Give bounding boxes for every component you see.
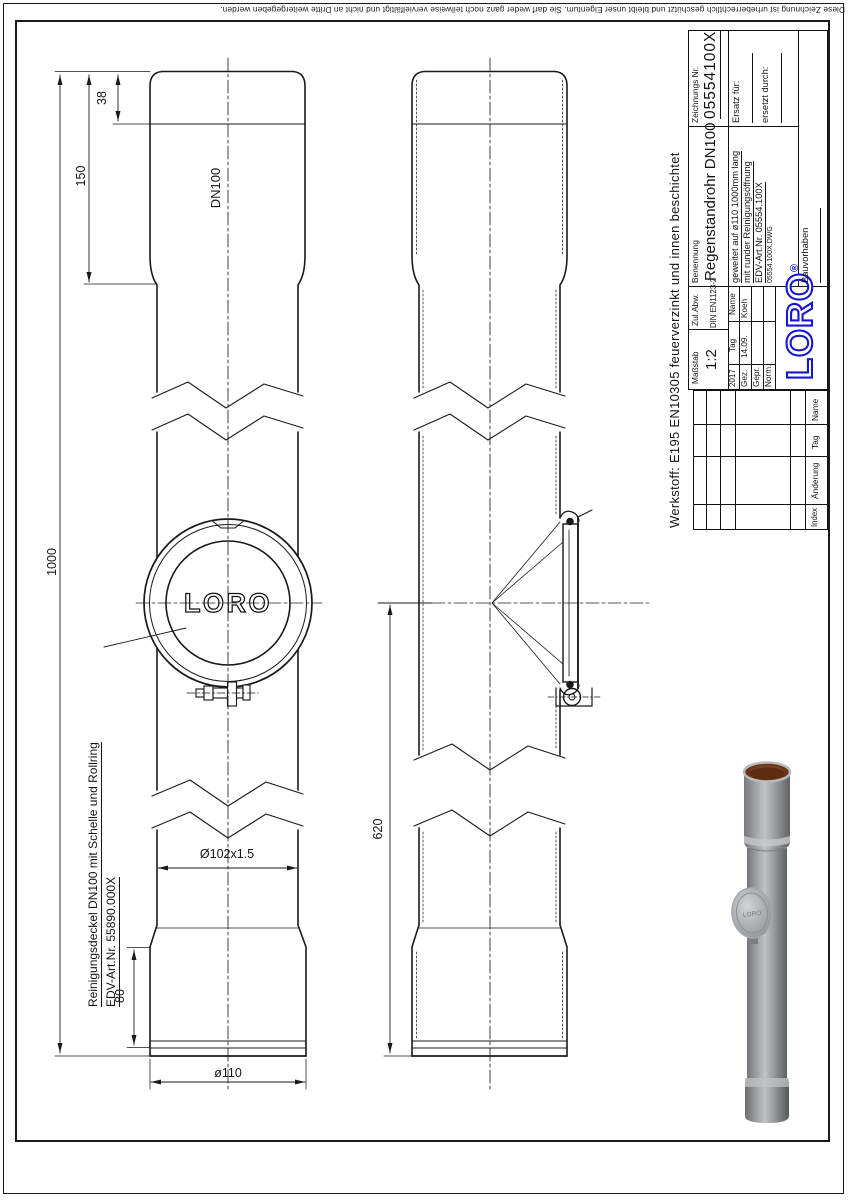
tag-header: Tag	[729, 339, 738, 352]
ersetzt-label: ersetzt durch:	[761, 67, 771, 123]
desc-line3: EDV-Art.Nr. 05554.100X	[755, 182, 766, 283]
masstab-label: Maßstab	[691, 351, 700, 384]
gez-name: Koeh	[741, 299, 750, 318]
drawing-view-section: 620	[371, 58, 650, 1090]
desc-line2: mit runder Reinigungsöffnung	[743, 161, 754, 283]
cleaning-cover-section	[492, 510, 600, 706]
dim-150-label: 150	[74, 166, 88, 187]
bauvorhaben-label: Bauvorhaben	[801, 228, 811, 283]
product-photo: LORO	[729, 763, 790, 1124]
gez-label: Gez.	[741, 370, 750, 387]
desc-line1: geweitet auf ø110 1000mm lang	[731, 151, 742, 283]
callout-line2: EDV-Art.Nr. 55890.000X	[104, 877, 120, 1007]
revision-aenderung-label: Änderung	[811, 463, 820, 499]
ersatz-label: Ersatz für:	[732, 81, 742, 123]
zeichnung-label: Zeichnungs Nr.	[691, 67, 700, 123]
name-header: Name	[729, 293, 738, 315]
section-wall-lines	[417, 80, 563, 1038]
norm-label: Norm.	[765, 365, 774, 387]
centerlines-section	[432, 58, 650, 1090]
callout-wrap: Reinigungsdeckel DN100 mit Schelle und R…	[86, 645, 128, 1007]
desc-line4: 05554.100X.DWG	[767, 226, 774, 283]
cleaning-cover-callout: Reinigungsdeckel DN100 mit Schelle und R…	[86, 645, 128, 1007]
revision-tag-label: Tag	[811, 435, 820, 449]
title-block-wrap: Werkstoff: E195 EN10305 feuerverzinkt un…	[660, 30, 830, 530]
benennung-value: Regenstandrohr DN100	[703, 123, 719, 281]
revision-index-label: Index	[811, 508, 819, 527]
benennung-label: Benennung	[691, 240, 700, 283]
year-value: 2017	[729, 369, 737, 387]
callout-line1: Reinigungsdeckel DN100 mit Schelle und R…	[86, 742, 102, 1007]
dim-1000-label: 1000	[45, 548, 59, 576]
dim-102-label: Ø102x1.5	[200, 847, 254, 861]
werkstoff-note: Werkstoff: E195 EN10305 feuerverzinkt un…	[668, 152, 682, 528]
revision-table	[693, 390, 828, 530]
dim-620-label: 620	[371, 819, 385, 840]
zulabw-value: DIN EN1123-2	[710, 278, 718, 328]
dim-110-label: ø110	[214, 1066, 242, 1080]
masstab-value: 1:2	[704, 349, 720, 370]
zulabw-label: Zul.Abw.	[691, 294, 700, 326]
dimensions-section	[384, 605, 412, 1056]
dim-38-label: 38	[95, 91, 109, 105]
revision-name-label: Name	[811, 399, 820, 421]
dn100-label: DN100	[208, 168, 223, 208]
title-block: Werkstoff: E195 EN10305 feuerverzinkt un…	[660, 30, 830, 530]
gepr-label: Gepr.	[753, 367, 762, 387]
zeichnung-value: 05554100X	[703, 31, 721, 119]
drawing-sheet: Diese Zeichnung ist urheberrechtlich ges…	[0, 0, 849, 1200]
gez-tag: 14.09.	[741, 335, 750, 358]
